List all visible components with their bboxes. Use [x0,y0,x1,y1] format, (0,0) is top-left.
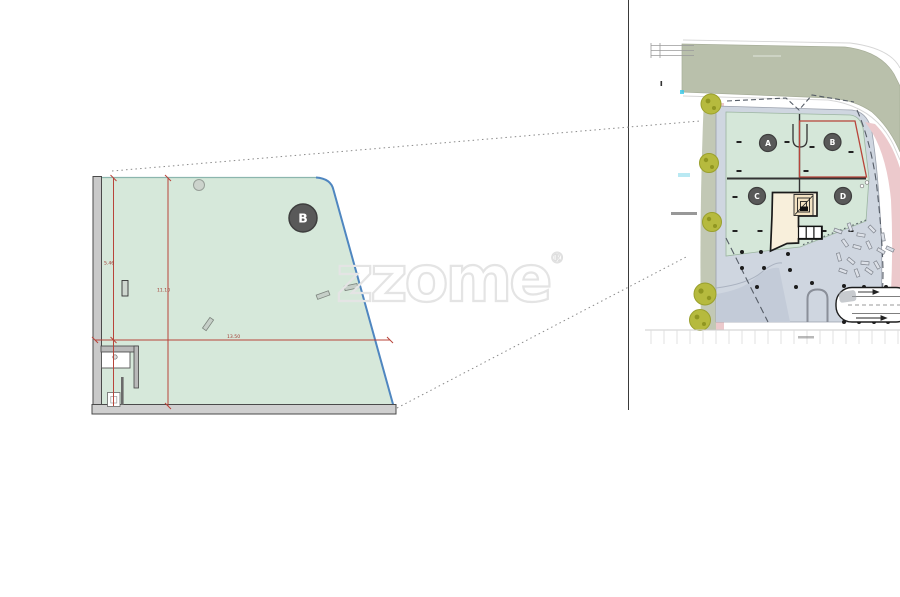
plot-marker-b[interactable]: B [824,134,841,151]
tree-icon [690,310,711,331]
vehicle-shape [838,290,856,303]
small-circle-mark [865,181,869,185]
street-label-smudge [798,336,814,339]
detail-bottom-wall [92,405,396,415]
road-steps-detail [651,43,694,58]
tree-icon [700,154,719,173]
detail-interior-wall-vertical [134,346,139,388]
road-name-smudge [753,55,781,57]
plot-marker-c[interactable]: C [749,188,766,205]
plot-marker-a[interactable]: A [760,135,777,152]
bottom-survey-line [645,330,900,344]
plot-c-label: C [754,192,760,201]
stair-landing [800,207,808,212]
micro-label-smudge [671,212,697,215]
plot-d-label: D [840,192,846,201]
road-micro-mark [661,81,663,86]
detail-plot-b-label: B [298,211,308,226]
stair-core [794,195,813,216]
plot-a-label: A [765,139,771,148]
plan-drawing: 5.46 11.10 13.50 B [0,0,900,597]
detail-plan-plot-b: 5.46 11.10 13.50 B [92,175,396,414]
access-ramp [836,288,900,323]
plan-viewer-page: 5.46 11.10 13.50 B [0,0,900,597]
detail-interior-wall-horizontal [101,346,138,352]
detail-door-leaf [122,281,128,297]
dimension-width: 13.50 [227,334,240,340]
micro-cyan-smudge [678,173,690,177]
detail-plot-area [95,178,393,407]
survey-cyan-marker [680,90,684,94]
dimension-mid-height: 11.10 [157,288,170,294]
detail-column-circle [194,180,205,191]
plot-b-label: B [830,138,836,147]
site-plan: A B C D [645,40,900,344]
detail-door-opening [102,352,131,368]
detail-wall-stub [121,377,124,405]
small-circle-mark [860,184,864,188]
zoom-connection-bottom-line [397,256,688,408]
plot-marker-d[interactable]: D [835,188,852,205]
building-cells [799,227,822,239]
detail-left-wall [93,177,102,406]
dimension-left-height: 5.46 [104,261,114,267]
tree-icon [694,283,716,305]
tree-icon [703,213,722,232]
zoom-connection-top-line [112,121,700,171]
tree-icon [701,94,721,114]
